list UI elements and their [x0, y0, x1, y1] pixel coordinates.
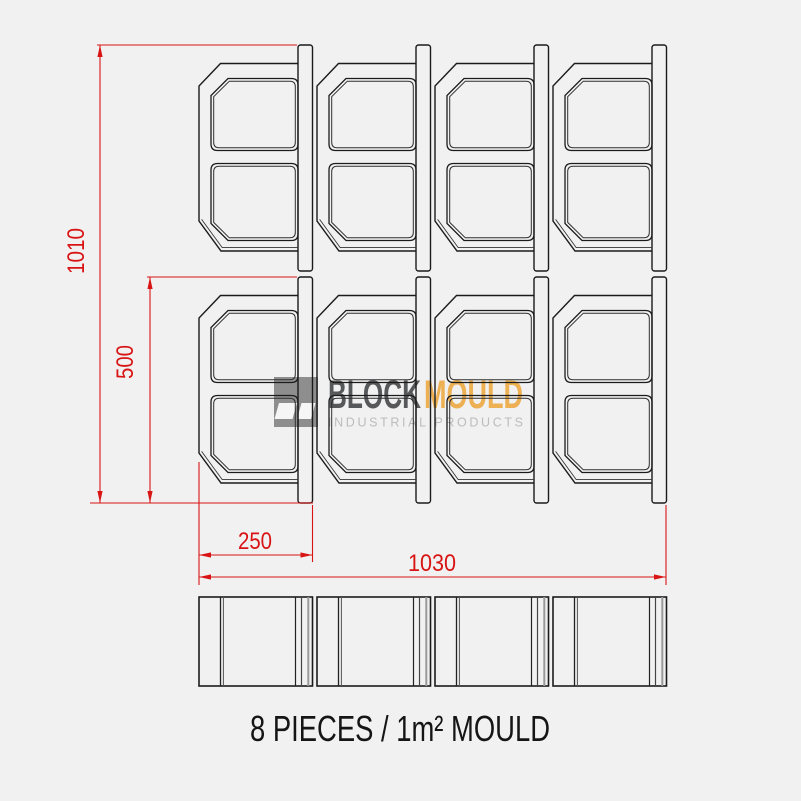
mould-piece-r1c1 [199, 45, 313, 271]
mould-piece-r2c4 [553, 277, 667, 503]
logo-watermark: BLOCK MOULD INDUSTRIAL PRODUCTS [274, 373, 523, 430]
dim-label-1030: 1030 [408, 550, 456, 577]
technical-drawing: BLOCK MOULD INDUSTRIAL PRODUCTS [0, 0, 801, 801]
mould-drawing-svg: BLOCK MOULD INDUSTRIAL PRODUCTS [0, 0, 801, 801]
dimension-lines [90, 45, 666, 585]
side-view-piece-2 [317, 597, 431, 686]
mould-piece-r1c2 [317, 45, 431, 271]
caption: 8 PIECES / 1m² MOULD [250, 708, 550, 749]
side-view-piece-1 [199, 597, 313, 686]
dim-label-250: 250 [238, 528, 272, 555]
logo-mark [274, 377, 318, 427]
mould-piece-r1c3 [435, 45, 549, 271]
dim-label-1010: 1010 [63, 228, 90, 274]
side-view-piece-3 [435, 597, 549, 686]
mould-piece-r1c4 [553, 45, 667, 271]
dim-label-500: 500 [112, 345, 139, 379]
side-view-piece-4 [553, 597, 667, 686]
top-view [199, 45, 667, 503]
side-view [199, 597, 667, 686]
logo-tagline: INDUSTRIAL PRODUCTS [328, 416, 523, 430]
